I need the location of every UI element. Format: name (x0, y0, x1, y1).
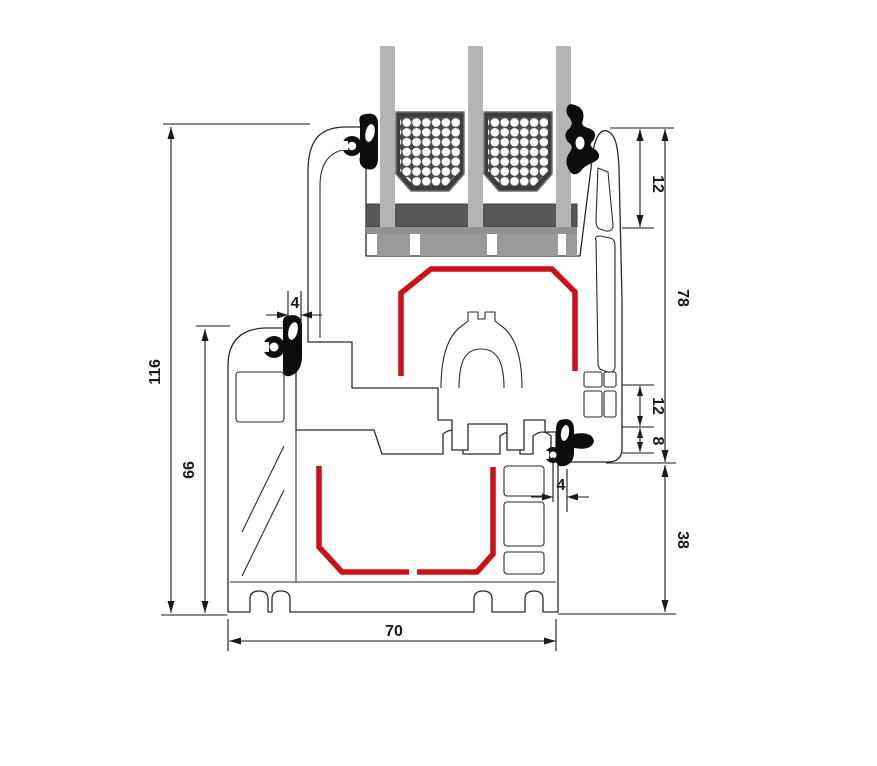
dim-label-4-mid: 4 (557, 477, 566, 494)
glazing-spacer-desiccant-dots (400, 117, 460, 186)
dimension-frame-height: 66 (181, 326, 230, 613)
dim-label-4-top: 4 (291, 295, 300, 312)
dimension-rebate-offset: 12 (622, 385, 666, 427)
dimension-profile-depth: 70 (228, 619, 556, 651)
glass-pane-outer (380, 46, 395, 227)
glazing-bridge-strip (366, 227, 577, 234)
dim-label-8: 8 (649, 437, 666, 446)
profile-cross-section-drawing: 116 66 4 12 78 (0, 0, 877, 766)
dim-label-12-top: 12 (649, 175, 666, 193)
technical-drawing-page: 116 66 4 12 78 (0, 0, 877, 766)
dim-label-70: 70 (385, 623, 403, 640)
glazing-packer (420, 234, 487, 256)
dim-label-78: 78 (674, 289, 691, 307)
triple-glazing-unit (366, 46, 577, 256)
glazing-packer (377, 234, 410, 256)
glazing-spacer-desiccant-dots (488, 117, 548, 186)
dim-label-116: 116 (147, 359, 164, 385)
dimension-seal-gap: 8 (622, 428, 666, 453)
glazing-packer (497, 234, 558, 256)
glass-pane-middle (468, 46, 483, 227)
glazing-packer (566, 234, 577, 256)
dimension-lower-frame-height: 38 (558, 465, 691, 614)
dim-label-38: 38 (674, 531, 691, 549)
dim-label-12-mid: 12 (649, 397, 666, 415)
dim-label-66: 66 (181, 461, 198, 479)
